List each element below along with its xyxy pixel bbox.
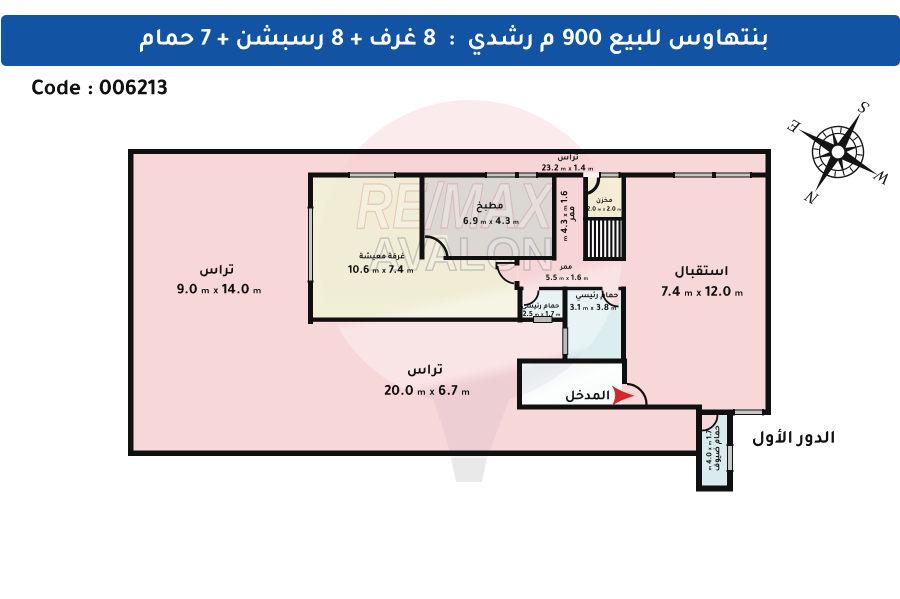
svg-text:N: N [801,186,823,209]
svg-text:S: S [855,97,872,118]
svg-text:W: W [870,164,893,188]
svg-text:E: E [784,115,804,137]
